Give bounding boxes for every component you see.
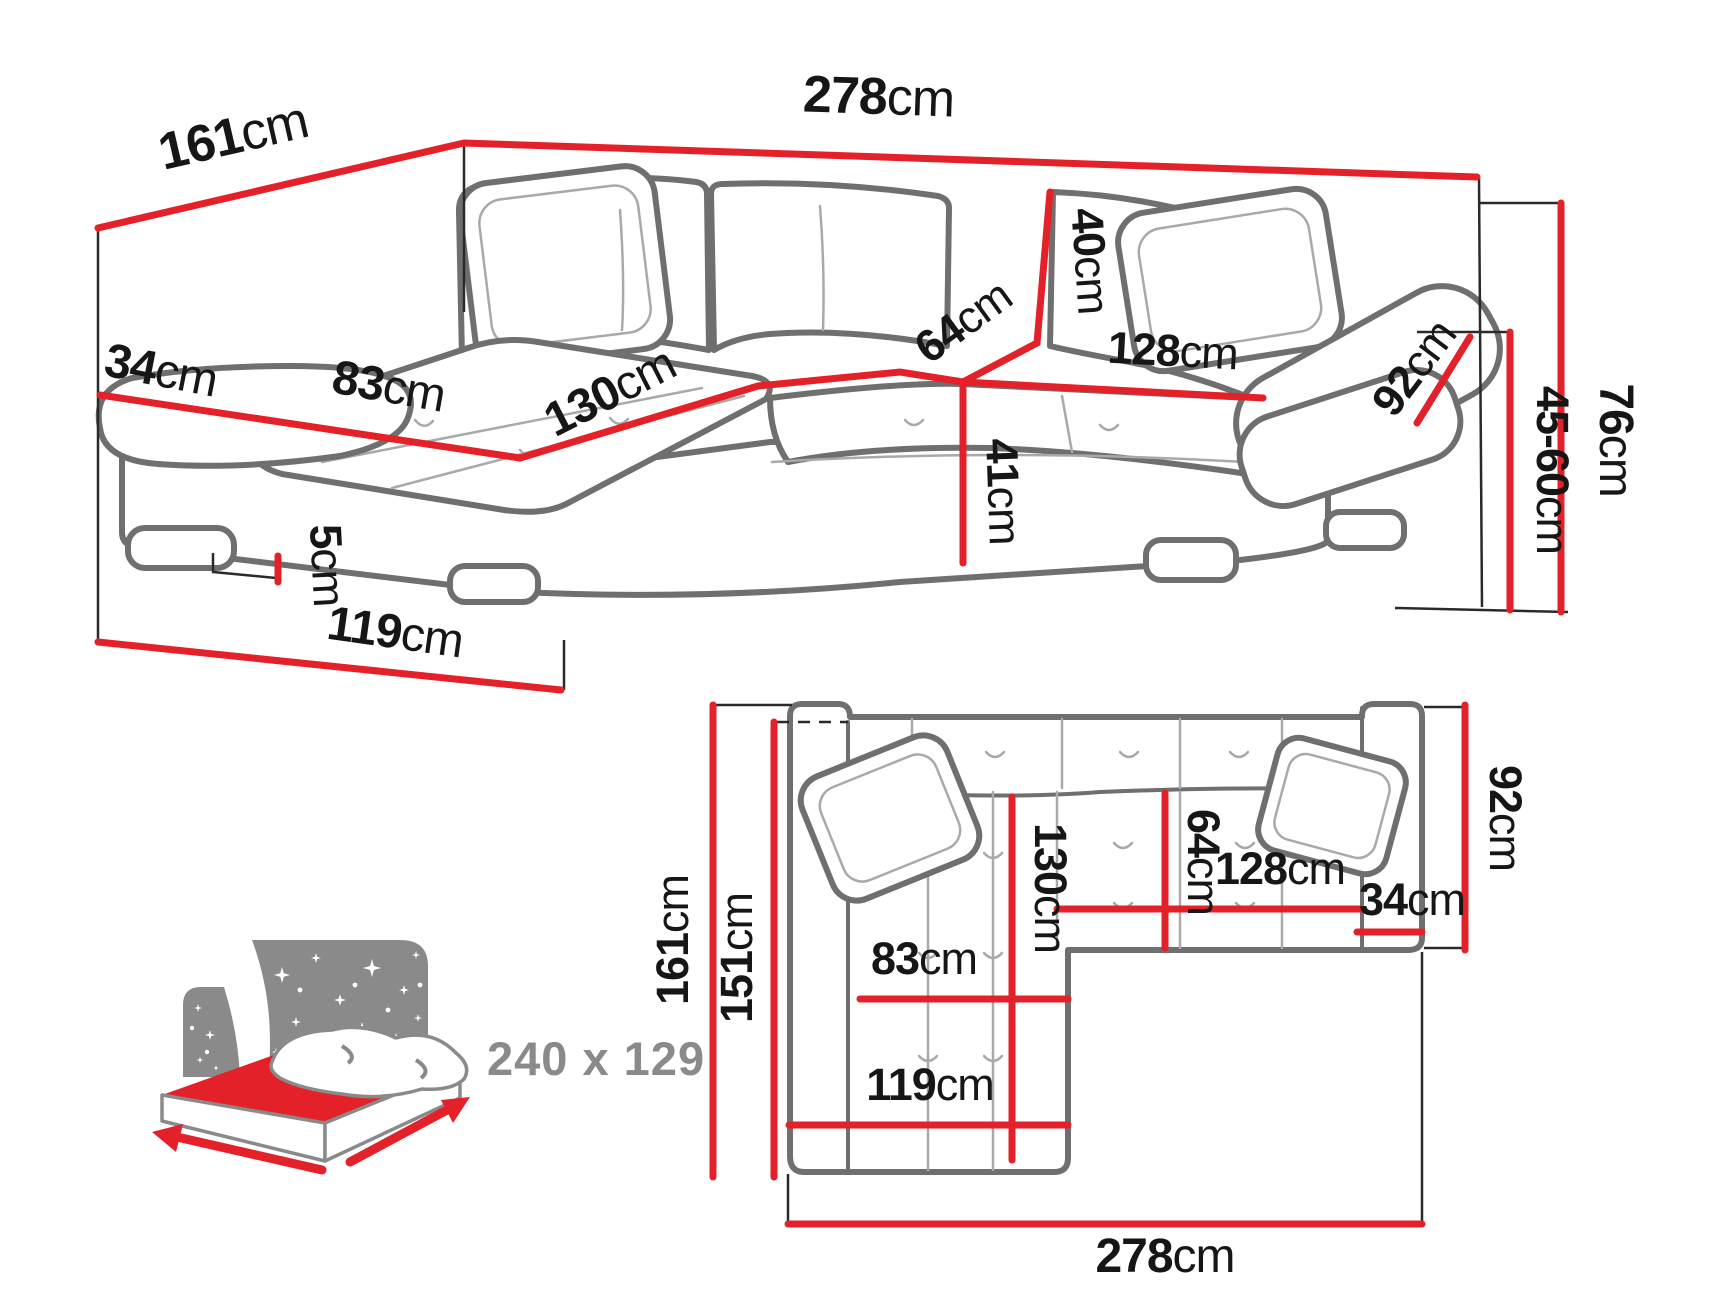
sofa-leg: [1146, 540, 1236, 580]
dim-label-armrest-width: 34cm: [1359, 874, 1465, 925]
perspective-view: 161cm 278cm 34cm 83cm 130cm 40cm 64cm 12…: [98, 65, 1642, 690]
sofa-leg: [128, 528, 234, 568]
sleeping-function-icon: 240 x 129: [152, 940, 705, 1170]
headboard-small-panel: [183, 987, 240, 1077]
blanket: [271, 1027, 467, 1096]
sofa-leg: [1326, 512, 1404, 548]
sofa-dimension-diagram: 161cm 278cm 34cm 83cm 130cm 40cm 64cm 12…: [0, 0, 1726, 1295]
dim-label-chaise-length: 119cm: [324, 597, 466, 668]
dim-label-armrest-depth: 92cm: [1480, 765, 1531, 871]
dim-label-armrest-height: 45-60cm: [1527, 386, 1578, 554]
dim-label-inner-depth: 151cm: [711, 893, 762, 1023]
dim-label-seat-width: 128cm: [1107, 322, 1240, 380]
dim-label-total-depth: 161cm: [647, 875, 698, 1005]
dim-label-backrest-height: 40cm: [1061, 206, 1119, 315]
plan-view: 161cm 151cm 130cm 64cm 128cm 34cm 92cm 8…: [647, 704, 1531, 1283]
dimension-diagram-page: 161cm 278cm 34cm 83cm 130cm 40cm 64cm 12…: [0, 0, 1726, 1295]
pillow-icon: [457, 163, 674, 370]
dim-label-chaise-length: 119cm: [866, 1059, 994, 1110]
dim-label-seat-width: 128cm: [1215, 843, 1345, 894]
sofa-leg: [450, 566, 538, 602]
dim-label-leg-height: 5cm: [300, 523, 355, 608]
sleeping-area-label: 240 x 129: [487, 1032, 705, 1085]
dim-label-total-height: 76cm: [1589, 383, 1642, 496]
dim-label-total-width: 278cm: [802, 65, 955, 128]
arrow-left-icon: [152, 1124, 183, 1152]
dim-label-chaise-seat-width: 83cm: [871, 933, 977, 984]
dim-label-total-width: 278cm: [1095, 1230, 1234, 1283]
dim-label-total-depth: 161cm: [153, 91, 313, 182]
dim-label-chaise-seat-depth: 130cm: [1025, 823, 1076, 953]
dim-label-seat-height: 41cm: [976, 438, 1031, 546]
